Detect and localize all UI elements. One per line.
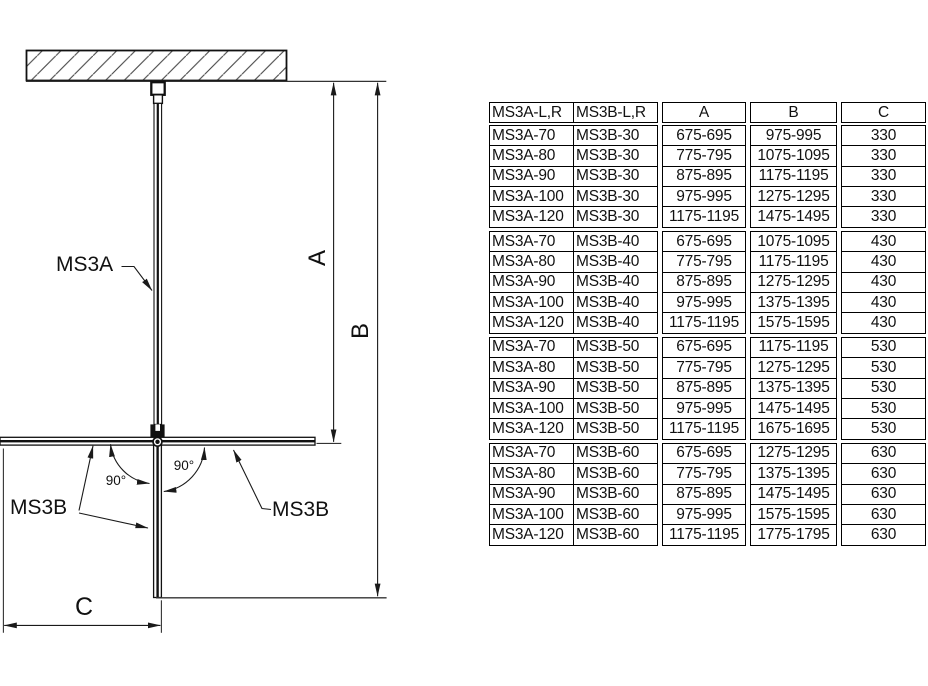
hinge-icon [152, 437, 163, 448]
table-cell: 330 [842, 188, 925, 206]
table-cell: 675-695 [663, 127, 745, 145]
table-cell: MS3B-60 [574, 506, 657, 524]
panel-ms3a-post [154, 103, 162, 424]
table-row: 1175-1195 [663, 312, 745, 332]
table-cell: 430 [842, 314, 925, 332]
table-row: MS3A-90MS3B-40 [490, 272, 657, 292]
dimension-lines [4, 83, 377, 626]
angle-right-label: 90° [169, 459, 199, 473]
col-b-block: 1075-10951175-11951275-12951375-13951575… [750, 231, 837, 334]
table-cell: 1275-1295 [751, 188, 836, 206]
table-row: 875-895 [663, 484, 745, 504]
model-columns-block: MS3A-L,RMS3B-L,R [489, 102, 658, 123]
table-cell: 1475-1495 [751, 400, 836, 418]
table-cell: MS3A-120 [490, 207, 574, 226]
table-cell: MS3A-120 [490, 313, 574, 332]
table-cell: 975-995 [663, 294, 745, 312]
table-row: MS3A-L,RMS3B-L,R [490, 103, 657, 122]
table-cell: 1175-1195 [663, 314, 745, 332]
table-row: 1375-1395 [751, 463, 836, 483]
table-group: MS3A-70MS3B-50MS3A-80MS3B-50MS3A-90MS3B-… [489, 337, 926, 440]
table-row: 630 [842, 504, 925, 524]
col-a-block: 675-695775-795875-895975-9951175-1195 [662, 231, 746, 334]
table-row: MS3A-80MS3B-40 [490, 251, 657, 271]
table-row: MS3A-80MS3B-30 [490, 145, 657, 165]
table-cell: MS3B-50 [574, 420, 657, 438]
table-row: 530 [842, 357, 925, 377]
table-row: 1475-1495 [751, 206, 836, 226]
table-cell: MS3B-L,R [574, 104, 657, 122]
table-row: 1175-1195 [751, 251, 836, 271]
table-cell: MS3B-30 [574, 127, 657, 145]
table-row: MS3A-90MS3B-50 [490, 378, 657, 398]
table-cell: 1375-1395 [751, 379, 836, 397]
table-row: 330 [842, 206, 925, 226]
table-group: MS3A-70MS3B-30MS3A-80MS3B-30MS3A-90MS3B-… [489, 125, 926, 228]
table-cell: 430 [842, 233, 925, 251]
table-row: 975-995 [663, 504, 745, 524]
joint-block [150, 424, 164, 438]
table-row: 1575-1595 [751, 312, 836, 332]
table-cell: 1475-1495 [751, 208, 836, 226]
table-row: 1475-1495 [751, 484, 836, 504]
table-row: MS3A-120MS3B-60 [490, 524, 657, 544]
table-row: 875-895 [663, 272, 745, 292]
table-row: 975-995 [751, 126, 836, 145]
table-row: 675-695 [663, 444, 745, 463]
table-cell: MS3A-L,R [490, 103, 574, 122]
table-row: 630 [842, 463, 925, 483]
table-row: 330 [842, 186, 925, 206]
spec-table: MS3A-L,RMS3B-L,RABCMS3A-70MS3B-30MS3A-80… [489, 102, 926, 546]
leader-ms3a [122, 267, 153, 291]
table-cell: 975-995 [663, 400, 745, 418]
table-cell: 675-695 [663, 338, 745, 356]
table-row: 1775-1795 [751, 524, 836, 544]
table-row: 330 [842, 145, 925, 165]
table-cell: 530 [842, 420, 925, 438]
table-cell: 430 [842, 294, 925, 312]
table-cell: MS3A-70 [490, 126, 574, 145]
table-row: 1175-1195 [751, 338, 836, 357]
table-cell: MS3B-60 [574, 485, 657, 503]
ceiling-slab [26, 51, 386, 82]
table-cell: 775-795 [663, 465, 745, 483]
leader-ms3b-left-1 [79, 446, 93, 511]
table-cell: 1175-1195 [663, 420, 745, 438]
col-c-block: 630630630630630 [841, 443, 926, 546]
table-cell: 1375-1395 [751, 465, 836, 483]
table-cell: MS3A-80 [490, 252, 574, 271]
table-cell: MS3A-90 [490, 379, 574, 398]
table-cell: MS3B-40 [574, 253, 657, 271]
table-cell: 1275-1295 [751, 444, 836, 462]
table-row: MS3A-100MS3B-40 [490, 292, 657, 312]
table-cell: MS3A-70 [490, 444, 574, 463]
table-row: 430 [842, 292, 925, 312]
table-group: MS3A-70MS3B-60MS3A-80MS3B-60MS3A-90MS3B-… [489, 443, 926, 546]
table-row: MS3A-120MS3B-50 [490, 418, 657, 438]
table-row: 1175-1195 [663, 206, 745, 226]
table-cell: 1375-1395 [751, 294, 836, 312]
table-row: 875-895 [663, 378, 745, 398]
ms3b-left-label: MS3B [10, 497, 67, 519]
ms3a-label: MS3A [56, 254, 113, 276]
table-cell: 775-795 [663, 147, 745, 165]
model-columns-block: MS3A-70MS3B-60MS3A-80MS3B-60MS3A-90MS3B-… [489, 443, 658, 546]
table-cell: 1175-1195 [751, 338, 836, 356]
table-cell: MS3A-90 [490, 485, 574, 504]
table-row: 1175-1195 [663, 418, 745, 438]
table-row: MS3A-120MS3B-40 [490, 312, 657, 332]
table-row: 430 [842, 251, 925, 271]
table-cell: 330 [842, 147, 925, 165]
table-cell: MS3B-40 [574, 273, 657, 291]
table-cell: MS3A-80 [490, 464, 574, 483]
table-cell: B [751, 104, 836, 122]
table-row: 330 [842, 126, 925, 145]
table-row: 430 [842, 272, 925, 292]
leader-ms3b-right [234, 450, 272, 510]
col-a-block: 675-695775-795875-895975-9951175-1195 [662, 125, 746, 228]
table-row: 1275-1295 [751, 272, 836, 292]
table-row: 1175-1195 [751, 166, 836, 186]
table-row: 430 [842, 232, 925, 251]
table-cell: 1175-1195 [663, 526, 745, 544]
table-row: MS3A-70MS3B-60 [490, 444, 657, 463]
table-cell: MS3A-120 [490, 419, 574, 438]
table-row: 1475-1495 [751, 398, 836, 418]
table-cell: 530 [842, 400, 925, 418]
table-row: 1375-1395 [751, 378, 836, 398]
table-row: MS3A-70MS3B-30 [490, 126, 657, 145]
table-header-band: MS3A-L,RMS3B-L,RABC [489, 102, 926, 123]
table-row: 675-695 [663, 338, 745, 357]
table-cell: 1275-1295 [751, 359, 836, 377]
table-cell: 675-695 [663, 444, 745, 462]
table-cell: MS3B-40 [574, 314, 657, 332]
table-cell: 530 [842, 338, 925, 356]
table-group: MS3A-70MS3B-40MS3A-80MS3B-40MS3A-90MS3B-… [489, 231, 926, 334]
table-cell: 1275-1295 [751, 273, 836, 291]
table-row: 975-995 [663, 186, 745, 206]
table-row: MS3A-90MS3B-60 [490, 484, 657, 504]
table-row: B [751, 103, 836, 122]
table-cell: MS3B-30 [574, 167, 657, 185]
table-row: MS3A-80MS3B-60 [490, 463, 657, 483]
table-cell: 975-995 [663, 506, 745, 524]
table-cell: MS3B-50 [574, 400, 657, 418]
table-cell: 530 [842, 379, 925, 397]
table-cell: C [842, 104, 925, 122]
table-row: C [842, 103, 925, 122]
page: MS3A MS3B MS3B A B C 90° 90° MS3A-L,RMS3… [0, 0, 928, 686]
col-b-block: 1275-12951375-13951475-14951575-15951775… [750, 443, 837, 546]
table-cell: MS3B-40 [574, 233, 657, 251]
table-cell: 1575-1595 [751, 314, 836, 332]
table-cell: 875-895 [663, 379, 745, 397]
table-cell: MS3B-30 [574, 208, 657, 226]
col-a-block: 675-695775-795875-895975-9951175-1195 [662, 443, 746, 546]
table-row: 1075-1095 [751, 145, 836, 165]
col-a-block: 675-695775-795875-895975-9951175-1195 [662, 337, 746, 440]
table-cell: 875-895 [663, 485, 745, 503]
table-cell: 1675-1695 [751, 420, 836, 438]
table-cell: MS3B-30 [574, 188, 657, 206]
table-cell: 1175-1195 [751, 253, 836, 271]
table-cell: 330 [842, 167, 925, 185]
table-row: 1375-1395 [751, 292, 836, 312]
glass-bar-vertical [154, 445, 162, 597]
ceiling-bracket [151, 82, 164, 103]
table-row: 330 [842, 166, 925, 186]
table-row: 430 [842, 312, 925, 332]
table-cell: MS3A-70 [490, 232, 574, 251]
model-columns-block: MS3A-70MS3B-30MS3A-80MS3B-30MS3A-90MS3B-… [489, 125, 658, 228]
table-cell: MS3A-120 [490, 525, 574, 544]
table-cell: 1075-1095 [751, 233, 836, 251]
table-row: 530 [842, 378, 925, 398]
ms3b-right-label: MS3B [272, 499, 329, 521]
table-cell: 330 [842, 208, 925, 226]
table-row: MS3A-90MS3B-30 [490, 166, 657, 186]
table-cell: 430 [842, 253, 925, 271]
table-cell: 975-995 [751, 127, 836, 145]
table-row: 975-995 [663, 292, 745, 312]
table-row: 1075-1095 [751, 232, 836, 251]
table-row: 630 [842, 444, 925, 463]
table-row: 630 [842, 524, 925, 544]
table-row: MS3A-70MS3B-40 [490, 232, 657, 251]
table-row: MS3A-120MS3B-30 [490, 206, 657, 226]
col-b-block: 975-9951075-10951175-11951275-12951475-1… [750, 125, 837, 228]
model-columns-block: MS3A-70MS3B-50MS3A-80MS3B-50MS3A-90MS3B-… [489, 337, 658, 440]
table-cell: 775-795 [663, 253, 745, 271]
table-row: A [663, 103, 745, 122]
table-cell: MS3A-80 [490, 358, 574, 377]
col-c-block: 430430430430430 [841, 231, 926, 334]
table-cell: MS3B-50 [574, 359, 657, 377]
table-cell: MS3A-90 [490, 273, 574, 292]
table-row: MS3A-70MS3B-50 [490, 338, 657, 357]
table-row: 875-895 [663, 166, 745, 186]
table-cell: MS3B-40 [574, 294, 657, 312]
col-b-block: B [750, 102, 837, 123]
table-cell: MS3B-50 [574, 338, 657, 356]
table-row: 1275-1295 [751, 444, 836, 463]
table-row: 530 [842, 398, 925, 418]
table-cell: 630 [842, 506, 925, 524]
table-cell: 630 [842, 485, 925, 503]
table-cell: 975-995 [663, 188, 745, 206]
table-row: 530 [842, 418, 925, 438]
table-cell: 1475-1495 [751, 485, 836, 503]
dim-a-label: A [306, 240, 330, 276]
dim-c-label: C [75, 594, 93, 620]
table-cell: MS3A-100 [490, 399, 574, 418]
table-row: 675-695 [663, 126, 745, 145]
model-columns-block: MS3A-70MS3B-40MS3A-80MS3B-40MS3A-90MS3B-… [489, 231, 658, 334]
table-row: 775-795 [663, 357, 745, 377]
leader-ms3b-left-2 [79, 513, 148, 528]
table-cell: A [663, 104, 745, 122]
table-row: 1575-1595 [751, 504, 836, 524]
table-cell: 1775-1795 [751, 526, 836, 544]
table-cell: MS3A-100 [490, 293, 574, 312]
table-cell: 775-795 [663, 359, 745, 377]
table-row: MS3A-80MS3B-50 [490, 357, 657, 377]
table-cell: 430 [842, 273, 925, 291]
table-cell: MS3B-60 [574, 444, 657, 462]
col-c-block: 530530530530530 [841, 337, 926, 440]
table-cell: MS3A-70 [490, 338, 574, 357]
angle-left-label: 90° [101, 474, 131, 488]
table-cell: 1175-1195 [663, 208, 745, 226]
table-cell: MS3A-100 [490, 505, 574, 524]
table-row: MS3A-100MS3B-50 [490, 398, 657, 418]
table-cell: 330 [842, 127, 925, 145]
table-cell: 875-895 [663, 273, 745, 291]
col-c-block: 330330330330330 [841, 125, 926, 228]
table-cell: MS3B-30 [574, 147, 657, 165]
table-row: 1175-1195 [663, 524, 745, 544]
table-cell: 630 [842, 526, 925, 544]
table-cell: MS3B-60 [574, 526, 657, 544]
table-row: 975-995 [663, 398, 745, 418]
table-row: MS3A-100MS3B-30 [490, 186, 657, 206]
table-row: 1275-1295 [751, 357, 836, 377]
table-cell: MS3B-60 [574, 465, 657, 483]
table-row: 775-795 [663, 145, 745, 165]
table-row: 530 [842, 338, 925, 357]
table-cell: MS3B-50 [574, 379, 657, 397]
table-row: 1275-1295 [751, 186, 836, 206]
dim-b-label: B [349, 313, 373, 349]
table-cell: 1075-1095 [751, 147, 836, 165]
table-cell: 630 [842, 444, 925, 462]
table-cell: 1175-1195 [751, 167, 836, 185]
table-cell: MS3A-80 [490, 146, 574, 165]
table-row: 1675-1695 [751, 418, 836, 438]
table-cell: 630 [842, 465, 925, 483]
table-cell: 530 [842, 359, 925, 377]
table-row: 775-795 [663, 251, 745, 271]
table-cell: 1575-1595 [751, 506, 836, 524]
table-cell: 875-895 [663, 167, 745, 185]
table-row: 630 [842, 484, 925, 504]
table-row: 675-695 [663, 232, 745, 251]
table-cell: MS3A-90 [490, 167, 574, 186]
table-cell: 675-695 [663, 233, 745, 251]
col-b-block: 1175-11951275-12951375-13951475-14951675… [750, 337, 837, 440]
table-row: 775-795 [663, 463, 745, 483]
table-cell: MS3A-100 [490, 187, 574, 206]
col-a-block: A [662, 102, 746, 123]
col-c-block: C [841, 102, 926, 123]
table-row: MS3A-100MS3B-60 [490, 504, 657, 524]
